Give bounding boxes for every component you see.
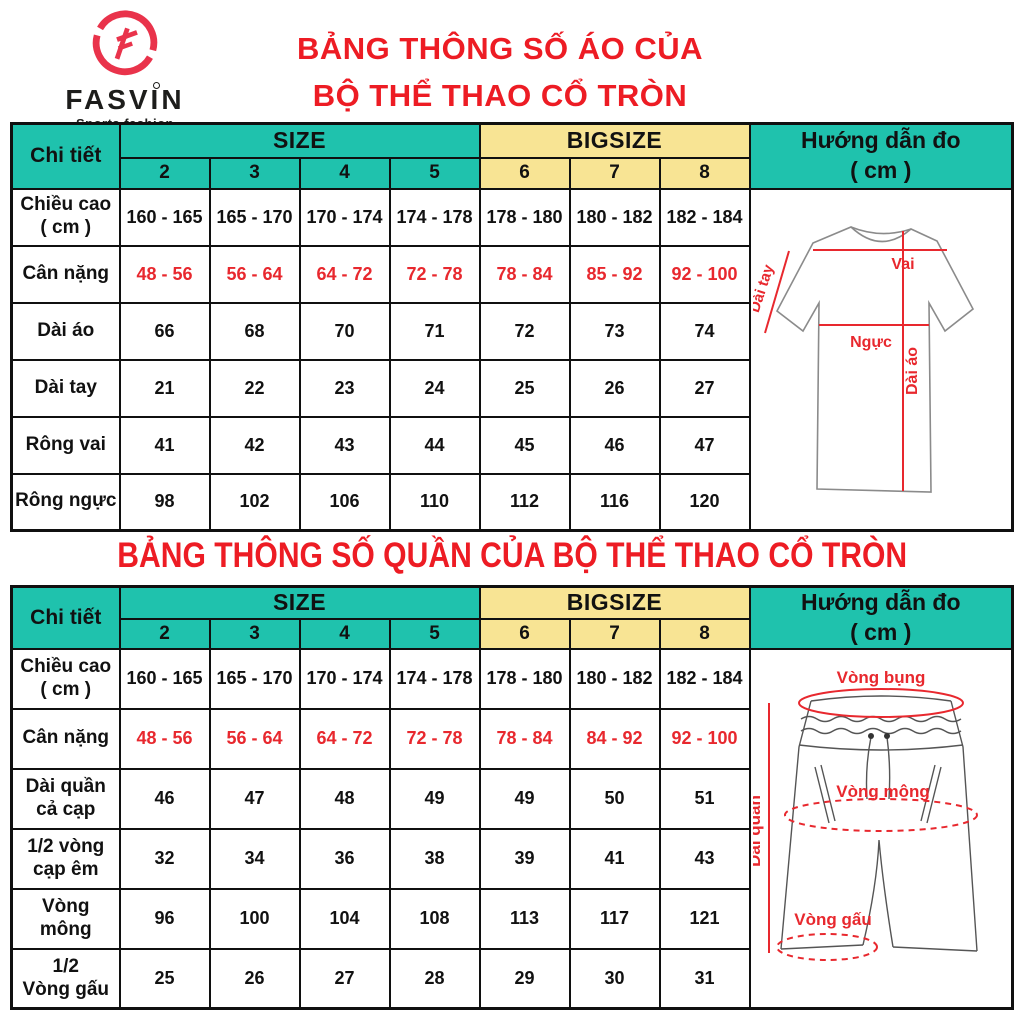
shirt-title-line2: BỘ THỂ THAO CỔ TRÒN [0,73,1024,120]
shirt-length-measure-label: Dài áo [904,347,921,395]
table-cell: 178 - 180 [480,189,570,246]
table-cell: 47 [210,769,300,829]
size-header: SIZE [120,587,480,619]
table-cell: 27 [300,949,390,1009]
shirt-title-line1: BẢNG THÔNG SỐ ÁO CỦA [0,26,1024,73]
table-cell: 92 - 100 [660,246,750,303]
bigsize-header: BIGSIZE [480,124,750,158]
table-cell: 25 [480,360,570,417]
table-cell: 42 [210,417,300,474]
table-cell: 178 - 180 [480,649,570,709]
size-col: 4 [300,619,390,649]
size-col: 5 [390,158,480,189]
table-row: Chiều cao ( cm ) 160 - 165 165 - 170 170… [12,189,1013,246]
table-cell: 72 [480,303,570,360]
bigsize-col: 7 [570,619,660,649]
table-cell: 180 - 182 [570,189,660,246]
table-cell: 100 [210,889,300,949]
table-cell: 56 - 64 [210,246,300,303]
table-cell: 64 - 72 [300,246,390,303]
table-cell: 41 [120,417,210,474]
table-cell: 180 - 182 [570,649,660,709]
bigsize-col: 6 [480,619,570,649]
size-col: 3 [210,158,300,189]
table-cell: 84 - 92 [570,709,660,769]
table-cell: 170 - 174 [300,649,390,709]
table-cell: 174 - 178 [390,649,480,709]
table-cell: 43 [300,417,390,474]
table-cell: 182 - 184 [660,189,750,246]
table-cell: 106 [300,474,390,531]
table-cell: 26 [570,360,660,417]
table-cell: 98 [120,474,210,531]
guide-label: Hướng dẫn đo [751,588,1011,618]
bigsize-col: 8 [660,619,750,649]
size-col: 4 [300,158,390,189]
table-cell: 78 - 84 [480,246,570,303]
table-cell: 51 [660,769,750,829]
table-cell: 85 - 92 [570,246,660,303]
table-cell: 44 [390,417,480,474]
bigsize-col: 6 [480,158,570,189]
size-col: 3 [210,619,300,649]
table-cell: 78 - 84 [480,709,570,769]
table-cell: 74 [660,303,750,360]
hem-measure-label: Vòng gấu [794,910,871,929]
table-cell: 165 - 170 [210,649,300,709]
table-cell: 68 [210,303,300,360]
table-cell: 104 [300,889,390,949]
table-cell: 24 [390,360,480,417]
table-cell: 49 [390,769,480,829]
table-cell: 102 [210,474,300,531]
pants-title: BẢNG THÔNG SỐ QUẦN CỦA BỘ THỂ THAO CỔ TR… [0,536,1024,576]
corner-header: Chi tiết [12,587,120,649]
row-label: Dài quần cả cạp [12,769,120,829]
table-cell: 165 - 170 [210,189,300,246]
table-cell: 64 - 72 [300,709,390,769]
table-cell: 160 - 165 [120,649,210,709]
pants-size-table: Chi tiết SIZE BIGSIZE Hướng dẫn đo ( cm … [10,585,1014,1010]
table-cell: 72 - 78 [390,709,480,769]
measure-guide-header: Hướng dẫn đo ( cm ) [750,587,1013,649]
table-cell: 48 [300,769,390,829]
pants-length-measure-label: Dài quần [753,795,764,867]
shirt-measure-diagram: Vai Ngực Dài áo Dài tay [750,189,1013,531]
guide-label: Hướng dẫn đo [751,126,1011,156]
size-col: 2 [120,158,210,189]
row-label: Chiều cao ( cm ) [12,189,120,246]
bigsize-header: BIGSIZE [480,587,750,619]
table-cell: 34 [210,829,300,889]
table-cell: 30 [570,949,660,1009]
shirt-size-table: Chi tiết SIZE BIGSIZE Hướng dẫn đo ( cm … [10,122,1014,532]
table-cell: 113 [480,889,570,949]
waist-measure-label: Vòng bụng [836,668,925,687]
bigsize-col: 8 [660,158,750,189]
size-header: SIZE [120,124,480,158]
table-cell: 25 [120,949,210,1009]
row-label: 1/2 Vòng gấu [12,949,120,1009]
corner-header: Chi tiết [12,124,120,189]
shirt-title: BẢNG THÔNG SỐ ÁO CỦA BỘ THỂ THAO CỔ TRÒN [0,26,1024,119]
table-cell: 48 - 56 [120,246,210,303]
bigsize-col: 7 [570,158,660,189]
measure-guide-header: Hướng dẫn đo ( cm ) [750,124,1013,189]
size-col: 5 [390,619,480,649]
table-cell: 72 - 78 [390,246,480,303]
table-cell: 48 - 56 [120,709,210,769]
table-cell: 121 [660,889,750,949]
table-cell: 43 [660,829,750,889]
table-cell: 174 - 178 [390,189,480,246]
table-cell: 71 [390,303,480,360]
table-cell: 28 [390,949,480,1009]
table-cell: 22 [210,360,300,417]
row-label: Dài tay [12,360,120,417]
table-cell: 70 [300,303,390,360]
size-col: 2 [120,619,210,649]
table-cell: 120 [660,474,750,531]
table-cell: 32 [120,829,210,889]
table-cell: 45 [480,417,570,474]
table-row: Chiều cao ( cm ) 160 - 165 165 - 170 170… [12,649,1013,709]
table-cell: 170 - 174 [300,189,390,246]
table-cell: 110 [390,474,480,531]
sleeve-measure-label: Dài tay [753,262,778,315]
table-cell: 26 [210,949,300,1009]
guide-unit: ( cm ) [751,618,1011,648]
chest-measure-label: Ngực [850,334,892,351]
row-label: Rông vai [12,417,120,474]
table-cell: 116 [570,474,660,531]
table-cell: 96 [120,889,210,949]
table-cell: 31 [660,949,750,1009]
table-cell: 36 [300,829,390,889]
table-cell: 47 [660,417,750,474]
table-cell: 182 - 184 [660,649,750,709]
row-label: Vòng mông [12,889,120,949]
table-cell: 50 [570,769,660,829]
table-cell: 46 [120,769,210,829]
table-cell: 112 [480,474,570,531]
table-cell: 66 [120,303,210,360]
row-label: Chiều cao ( cm ) [12,649,120,709]
row-label: Rông ngực [12,474,120,531]
table-cell: 39 [480,829,570,889]
table-cell: 73 [570,303,660,360]
table-cell: 41 [570,829,660,889]
guide-unit: ( cm ) [751,156,1011,186]
table-cell: 38 [390,829,480,889]
table-cell: 117 [570,889,660,949]
table-cell: 56 - 64 [210,709,300,769]
table-cell: 23 [300,360,390,417]
pants-measure-diagram: Vòng bụng Vòng mông Vòng gấu Dài quần [750,649,1013,1009]
table-cell: 46 [570,417,660,474]
row-label: Cân nặng [12,246,120,303]
table-cell: 108 [390,889,480,949]
table-cell: 160 - 165 [120,189,210,246]
table-cell: 21 [120,360,210,417]
row-label: Cân nặng [12,709,120,769]
row-label: Dài áo [12,303,120,360]
row-label: 1/2 vòng cạp êm [12,829,120,889]
table-cell: 29 [480,949,570,1009]
table-cell: 27 [660,360,750,417]
table-cell: 49 [480,769,570,829]
table-cell: 92 - 100 [660,709,750,769]
